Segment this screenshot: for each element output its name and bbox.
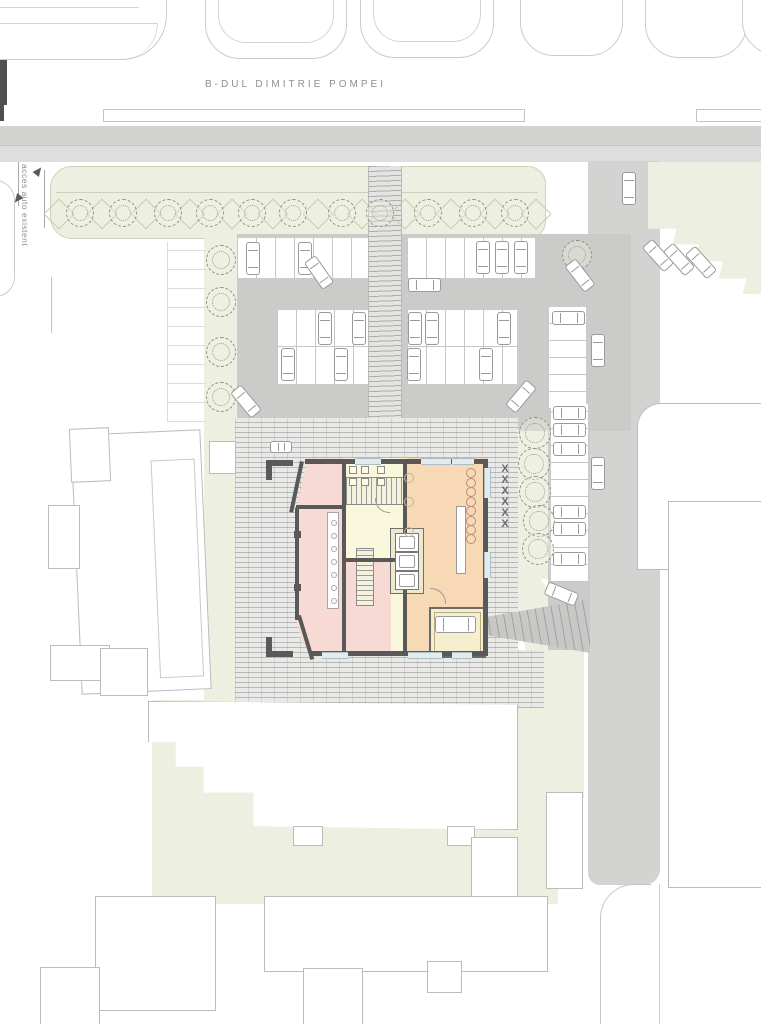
partition-dot — [331, 572, 337, 578]
partition-dot — [331, 546, 337, 552]
tree-icon — [519, 476, 551, 508]
boundary-line — [51, 277, 52, 333]
stairs — [356, 548, 374, 606]
structural-column — [0, 98, 7, 105]
tree-icon — [206, 287, 236, 317]
car-icon — [435, 616, 476, 633]
car-icon — [318, 312, 332, 345]
structural-column — [0, 70, 7, 77]
window-opening — [452, 458, 474, 465]
shelf-item — [0, 117, 4, 121]
access-note-label: acces auto existent — [20, 164, 30, 274]
tree-icon — [206, 382, 236, 412]
car-icon — [270, 441, 292, 453]
boulevard-road — [0, 126, 761, 145]
street-building-outline — [360, 0, 494, 58]
car-icon — [553, 552, 586, 566]
tree-icon — [328, 199, 356, 227]
shelf-unit — [456, 506, 466, 574]
masked-label: XXXXXX — [499, 463, 511, 529]
plaza-wall — [266, 651, 293, 657]
car-icon — [553, 505, 586, 519]
tree-icon — [279, 199, 307, 227]
tree-icon — [519, 417, 551, 449]
tree-icon — [66, 199, 94, 227]
street-building-outline — [0, 0, 167, 60]
tree-icon — [366, 199, 394, 227]
street-building-outline — [205, 0, 347, 59]
window-opening — [322, 652, 348, 659]
car-icon — [553, 522, 586, 536]
existing-building — [209, 441, 236, 474]
window-opening — [355, 458, 381, 465]
furniture-table — [349, 478, 357, 486]
tree-icon — [414, 199, 442, 227]
tree-icon — [154, 199, 182, 227]
tree-icon — [109, 199, 137, 227]
plaza-paving-east — [518, 650, 544, 708]
existing-parking-marks — [167, 242, 206, 422]
stall-divider — [277, 346, 368, 347]
car-icon — [425, 312, 439, 345]
structural-column — [0, 91, 7, 98]
window-opening — [484, 468, 491, 498]
access-guide-line — [44, 170, 45, 228]
seat-circle — [466, 534, 476, 544]
seat-circle — [404, 473, 414, 483]
street-name-label: B-DUL DIMITRIE POMPEI — [205, 79, 386, 90]
car-icon — [591, 457, 605, 490]
car-icon — [622, 172, 636, 205]
existing-building — [69, 427, 111, 483]
site-plan-canvas: B-DUL DIMITRIE POMPEI — [0, 0, 761, 1024]
window-opening — [452, 652, 472, 659]
tree-icon — [196, 199, 224, 227]
plaza-column — [294, 531, 301, 538]
furniture-table — [361, 478, 369, 486]
furniture-table — [377, 478, 385, 486]
existing-building — [95, 896, 216, 1011]
stall-divider — [407, 346, 517, 347]
street-building-outline — [520, 0, 623, 56]
street-building-outline — [645, 0, 747, 58]
tree-icon — [206, 337, 236, 367]
existing-building — [546, 792, 583, 889]
existing-building — [668, 501, 761, 888]
green-strip-curb-line — [56, 192, 538, 193]
median-island — [696, 109, 761, 122]
existing-building — [264, 896, 548, 972]
tree-icon — [238, 199, 266, 227]
car-icon — [281, 348, 295, 381]
partition-wall — [296, 505, 346, 509]
car-icon — [407, 348, 421, 381]
partition-dot — [331, 520, 337, 526]
existing-building — [40, 967, 100, 1024]
structural-column — [0, 63, 7, 70]
partition-dot — [331, 585, 337, 591]
car-icon — [246, 242, 260, 275]
car-icon — [553, 423, 586, 437]
car-icon — [408, 312, 422, 345]
furniture-table — [349, 466, 357, 474]
window-opening — [421, 458, 451, 465]
car-icon — [591, 334, 605, 367]
seat-circle — [466, 487, 476, 497]
existing-building — [293, 826, 323, 846]
seat-circle — [466, 468, 476, 478]
window-opening — [484, 552, 491, 578]
furniture-table — [377, 466, 385, 474]
car-icon — [479, 348, 493, 381]
car-icon — [552, 311, 585, 325]
curb-curve — [600, 884, 651, 1024]
arrow-icon — [33, 161, 48, 177]
tree-icon — [522, 533, 554, 565]
tree-icon — [501, 199, 529, 227]
car-icon — [497, 312, 511, 345]
plaza-wall — [266, 460, 272, 480]
car-icon — [553, 442, 586, 456]
car-icon — [553, 406, 586, 420]
seat-circle — [466, 497, 476, 507]
partition-dot — [331, 598, 337, 604]
furniture-table — [361, 466, 369, 474]
car-icon — [408, 278, 441, 292]
structural-column — [0, 84, 7, 91]
existing-building — [100, 648, 148, 696]
core-wall — [342, 459, 346, 655]
car-icon — [476, 241, 490, 274]
corner-green-area — [648, 162, 761, 304]
boulevard-road-lane — [0, 145, 761, 162]
curb-line — [659, 884, 660, 1024]
partition-dot — [331, 559, 337, 565]
facade-wall — [295, 508, 299, 620]
tree-icon — [459, 199, 487, 227]
car-icon — [352, 312, 366, 345]
seat-circle — [466, 478, 476, 488]
elevator-car — [395, 552, 419, 571]
elevator-car — [395, 571, 419, 590]
partition-dot — [331, 533, 337, 539]
existing-building — [303, 968, 363, 1024]
seat-circle — [404, 527, 414, 537]
existing-building — [471, 837, 518, 901]
seat-circle — [404, 497, 414, 507]
car-icon — [495, 241, 509, 274]
tree-icon — [206, 245, 236, 275]
car-icon — [514, 241, 528, 274]
window-opening — [408, 652, 442, 659]
median-island — [103, 109, 525, 122]
existing-building — [48, 505, 80, 569]
existing-building — [427, 961, 462, 993]
street-building-outline — [742, 0, 761, 55]
structural-column — [0, 77, 7, 84]
plaza-column — [294, 584, 301, 591]
seat-circle — [466, 516, 476, 526]
car-icon — [334, 348, 348, 381]
seat-circle — [466, 506, 476, 516]
